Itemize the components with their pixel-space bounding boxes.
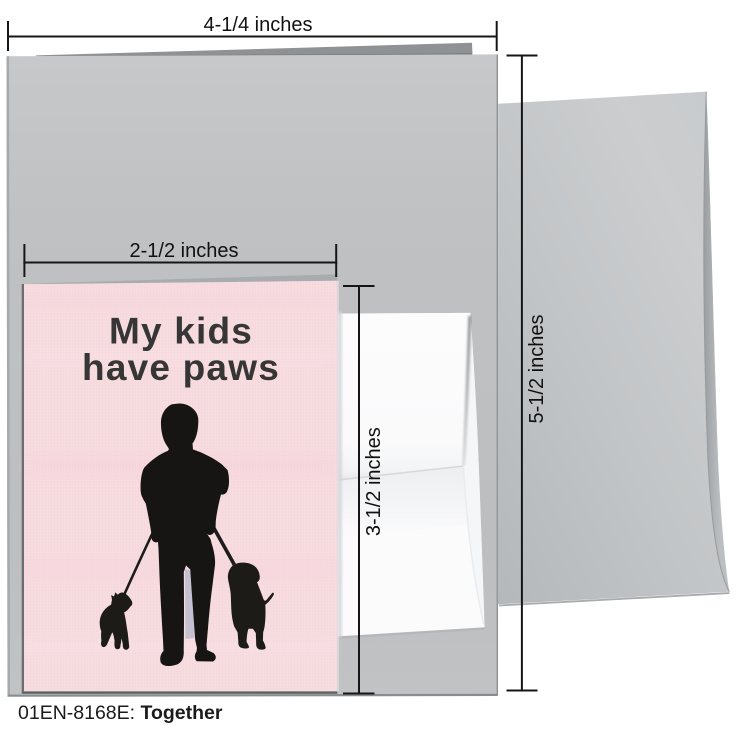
svg-text:5-1/2 inches: 5-1/2 inches (526, 315, 548, 424)
svg-text:4-1/4 inches: 4-1/4 inches (204, 14, 313, 36)
svg-text:2-1/2 inches: 2-1/2 inches (130, 240, 239, 262)
svg-text:3-1/2 inches: 3-1/2 inches (363, 427, 385, 536)
svg-text:01EN-8168E: Together: 01EN-8168E: Together (18, 702, 223, 724)
svg-text:have paws: have paws (82, 347, 280, 388)
svg-text:My kids: My kids (109, 311, 253, 352)
